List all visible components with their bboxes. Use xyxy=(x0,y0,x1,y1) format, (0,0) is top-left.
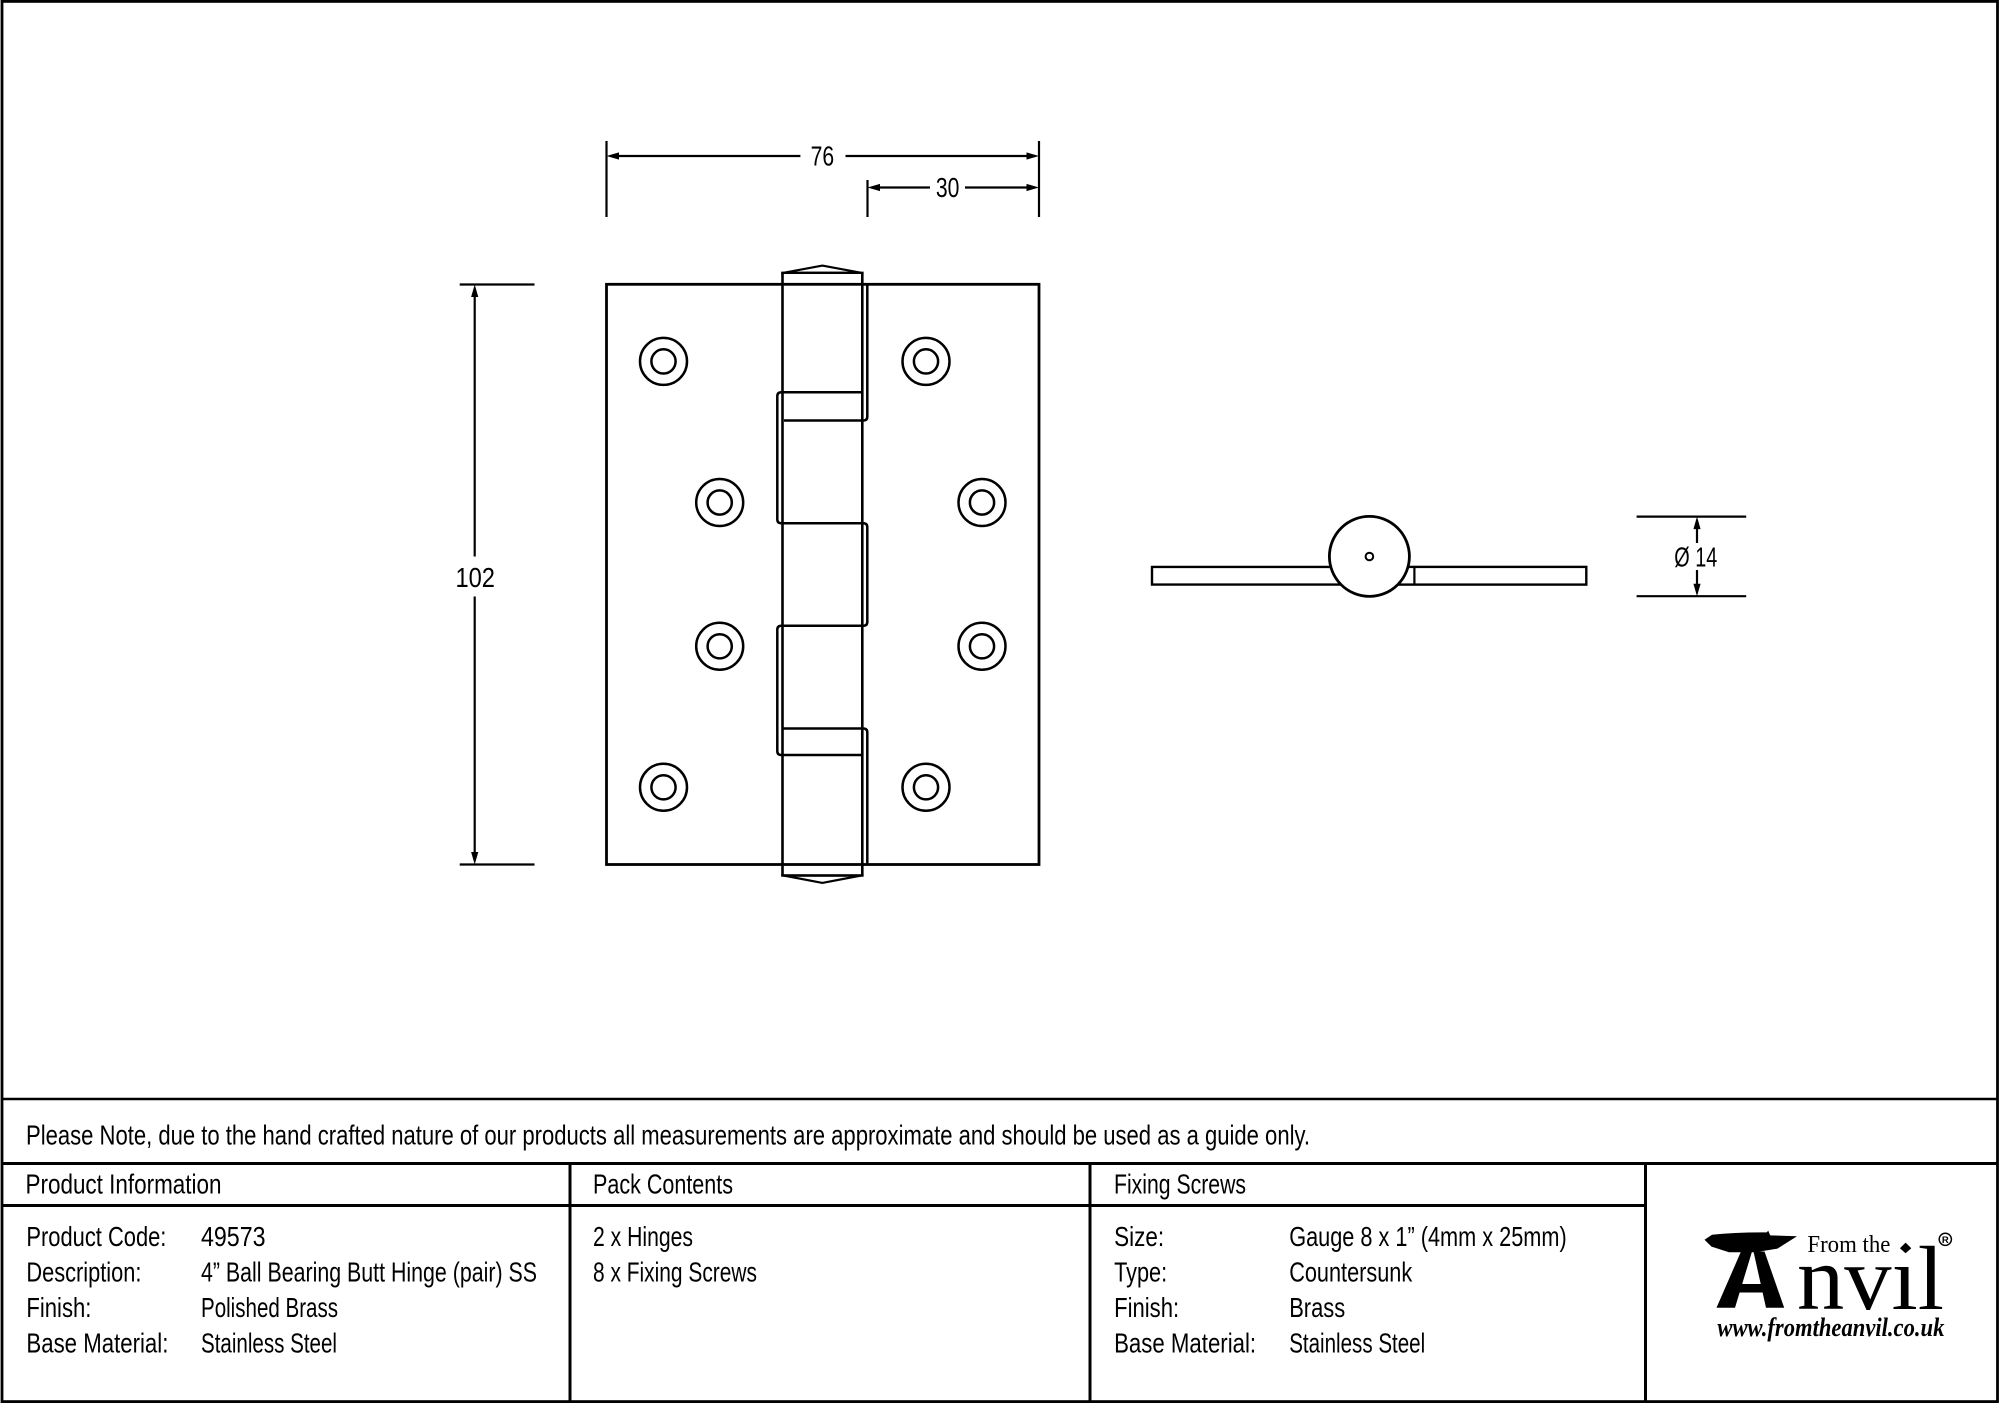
svg-text:Brass: Brass xyxy=(1289,1292,1345,1323)
svg-text:Ø 14: Ø 14 xyxy=(1674,541,1717,572)
svg-text:Finish:: Finish: xyxy=(1114,1292,1179,1323)
svg-text:Type:: Type: xyxy=(1114,1257,1167,1288)
svg-text:Gauge 8 x 1” (4mm x 25mm): Gauge 8 x 1” (4mm x 25mm) xyxy=(1289,1221,1567,1252)
svg-text:Fixing Screws: Fixing Screws xyxy=(1114,1169,1246,1200)
svg-text:49573: 49573 xyxy=(201,1221,266,1252)
svg-text:76: 76 xyxy=(811,141,835,172)
svg-text:Product Information: Product Information xyxy=(26,1169,222,1200)
svg-text:Pack Contents: Pack Contents xyxy=(593,1169,733,1200)
svg-text:R: R xyxy=(1942,1235,1949,1246)
svg-text:Stainless Steel: Stainless Steel xyxy=(1289,1328,1425,1359)
svg-text:4” Ball Bearing Butt Hinge (pa: 4” Ball Bearing Butt Hinge (pair) SS xyxy=(201,1257,537,1288)
svg-text:102: 102 xyxy=(455,562,495,593)
svg-text:Countersunk: Countersunk xyxy=(1289,1257,1413,1288)
svg-text:Product Code:: Product Code: xyxy=(26,1221,166,1252)
svg-text:Base Material:: Base Material: xyxy=(1114,1328,1256,1359)
svg-text:2 x Hinges: 2 x Hinges xyxy=(593,1221,693,1252)
svg-text:Base Material:: Base Material: xyxy=(26,1328,168,1359)
svg-text:8 x Fixing Screws: 8 x Fixing Screws xyxy=(593,1257,757,1288)
svg-text:30: 30 xyxy=(936,172,960,203)
svg-text:Polished Brass: Polished Brass xyxy=(201,1292,338,1323)
svg-text:www.fromtheanvil.co.uk: www.fromtheanvil.co.uk xyxy=(1717,1313,1944,1342)
svg-text:Please Note, due to the hand c: Please Note, due to the hand crafted nat… xyxy=(26,1120,1310,1151)
svg-text:Description:: Description: xyxy=(26,1257,141,1288)
svg-text:Size:: Size: xyxy=(1114,1221,1164,1252)
svg-text:Stainless Steel: Stainless Steel xyxy=(201,1328,337,1359)
svg-text:Finish:: Finish: xyxy=(26,1292,91,1323)
